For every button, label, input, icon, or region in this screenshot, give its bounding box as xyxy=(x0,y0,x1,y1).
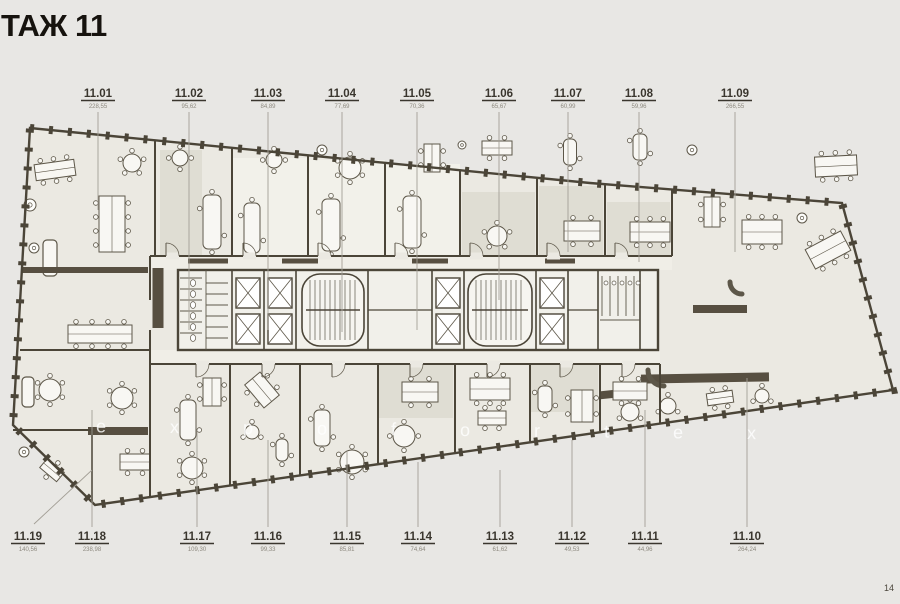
unit-label-11.11[interactable]: 11.1144,96 xyxy=(628,531,662,553)
unit-number: 11.11 xyxy=(631,531,659,543)
unit-label-11.03[interactable]: 11.0384,89 xyxy=(251,88,285,110)
unit-area: 228,55 xyxy=(89,104,108,110)
unit-label-11.14[interactable]: 11.1474,64 xyxy=(401,531,435,553)
floor-plan-drawing: 11.01228,5511.0295,6211.0384,8911.0477,6… xyxy=(0,0,900,604)
unit-area: 77,69 xyxy=(334,104,350,110)
unit-area: 99,33 xyxy=(260,547,276,553)
unit-label-11.01[interactable]: 11.01228,55 xyxy=(81,88,115,110)
unit-number: 11.12 xyxy=(558,531,586,543)
unit-label-11.16[interactable]: 11.1699,33 xyxy=(251,531,285,553)
unit-area: 238,98 xyxy=(83,547,102,553)
unit-area: 44,96 xyxy=(637,547,653,553)
unit-area: 59,96 xyxy=(631,104,647,110)
unit-number: 11.15 xyxy=(333,531,362,543)
unit-area: 264,24 xyxy=(738,547,757,553)
unit-number: 11.09 xyxy=(721,88,749,100)
floor-plan-page: ТАЖ 11 11.01228,5511.0295,6211.0384,8911… xyxy=(0,0,900,604)
unit-number: 11.18 xyxy=(78,531,107,543)
unit-number: 11.04 xyxy=(328,88,357,100)
unit-label-11.17[interactable]: 11.17109,30 xyxy=(180,531,214,553)
unit-label-11.19[interactable]: 11.19140,56 xyxy=(11,531,45,553)
unit-area: 70,36 xyxy=(409,104,425,110)
core-layer xyxy=(178,270,658,350)
unit-area: 49,53 xyxy=(564,547,580,553)
unit-number: 11.16 xyxy=(254,531,282,543)
unit-area: 85,81 xyxy=(339,547,355,553)
unit-area: 84,89 xyxy=(260,104,276,110)
unit-area: 266,55 xyxy=(726,104,745,110)
unit-number: 11.17 xyxy=(183,531,211,543)
unit-number: 11.07 xyxy=(554,88,582,100)
unit-area: 140,56 xyxy=(19,547,38,553)
unit-number: 11.03 xyxy=(254,88,282,100)
unit-label-11.10[interactable]: 11.10264,24 xyxy=(730,531,764,553)
unit-label-11.02[interactable]: 11.0295,62 xyxy=(172,88,206,110)
unit-number: 11.10 xyxy=(733,531,761,543)
unit-area: 95,62 xyxy=(181,104,197,110)
unit-label-11.18[interactable]: 11.18238,98 xyxy=(75,531,109,553)
unit-number: 11.06 xyxy=(485,88,513,100)
unit-number: 11.08 xyxy=(625,88,654,100)
unit-label-11.08[interactable]: 11.0859,96 xyxy=(622,88,656,110)
unit-label-11.13[interactable]: 11.1361,62 xyxy=(483,531,517,553)
unit-area: 60,99 xyxy=(560,104,576,110)
unit-number: 11.14 xyxy=(404,531,433,543)
unit-label-11.12[interactable]: 11.1249,53 xyxy=(555,531,589,553)
unit-label-11.04[interactable]: 11.0477,69 xyxy=(325,88,359,110)
unit-number: 11.19 xyxy=(14,531,42,543)
unit-number: 11.01 xyxy=(84,88,113,100)
unit-label-11.09[interactable]: 11.09266,55 xyxy=(718,88,752,110)
unit-number: 11.02 xyxy=(175,88,203,100)
unit-area: 109,30 xyxy=(188,547,207,553)
unit-area: 61,62 xyxy=(492,547,508,553)
unit-number: 11.13 xyxy=(486,531,514,543)
unit-label-11.07[interactable]: 11.0760,99 xyxy=(551,88,585,110)
page-number: 14 xyxy=(884,583,894,593)
page-title: ТАЖ 11 xyxy=(1,8,107,44)
unit-area: 65,67 xyxy=(491,104,507,110)
unit-label-11.05[interactable]: 11.0570,36 xyxy=(400,88,434,110)
unit-label-11.15[interactable]: 11.1585,81 xyxy=(330,531,364,553)
unit-area: 74,64 xyxy=(410,547,426,553)
unit-label-11.06[interactable]: 11.0665,67 xyxy=(482,88,516,110)
unit-number: 11.05 xyxy=(403,88,432,100)
